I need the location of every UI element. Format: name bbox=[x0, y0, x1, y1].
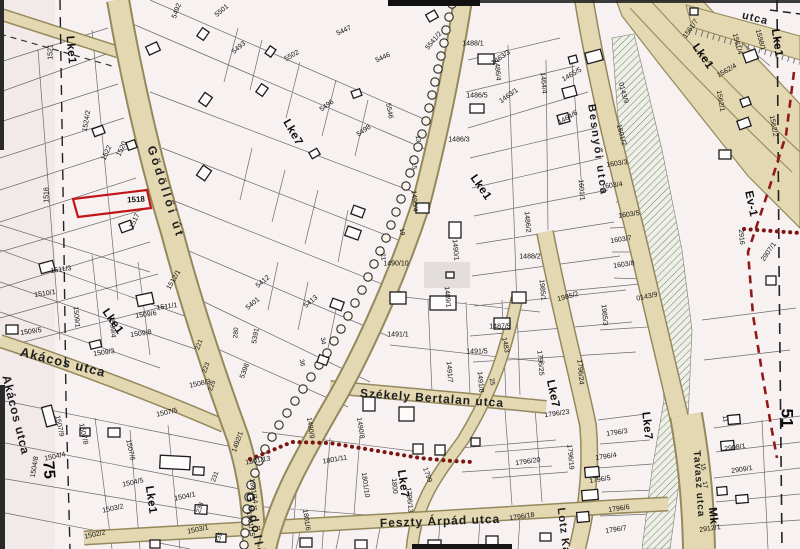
parcel-number-label: 2908/1 bbox=[724, 443, 746, 453]
map-labels-layer: Gödöllői útGödöllői útAkácos utcaAkácos … bbox=[0, 0, 800, 549]
house-number-label: 280 bbox=[233, 327, 240, 338]
parcel-number-label: 0143/9 bbox=[636, 291, 658, 302]
parcel-number-label: 1490/1 bbox=[451, 239, 460, 261]
parcel-number-label: 5401 bbox=[245, 296, 261, 311]
zoning-code-label: Lke1 bbox=[689, 42, 715, 72]
street-name-label: Akácos utca bbox=[0, 374, 31, 456]
parcel-number-label: 1503/1 bbox=[187, 524, 209, 535]
parcel-number-label: 2907/1 bbox=[760, 241, 778, 263]
parcel-number-label: 1796/6 bbox=[608, 504, 630, 514]
parcel-number-label: 5498 bbox=[356, 124, 373, 139]
zoning-code-label: Lke7 bbox=[543, 379, 560, 409]
parcel-number-label: 1503/2 bbox=[102, 503, 124, 514]
parcel-number-label: 1507/9 bbox=[53, 415, 64, 437]
parcel-number-label: 5412 bbox=[255, 274, 271, 289]
parcel-number-label: 1985/2 bbox=[557, 291, 580, 303]
parcel-number-label: 1601/2 bbox=[615, 124, 627, 147]
parcel-number-label: 1562/1 bbox=[715, 90, 726, 112]
parcel-number-label: 5391 bbox=[251, 328, 261, 345]
parcel-number-label: 1483 bbox=[500, 337, 510, 354]
parcel-number-label: 1490/4 bbox=[410, 190, 419, 212]
parcel-number-label: 1796/20 bbox=[515, 457, 541, 467]
parcel-number-label: 1504/8 bbox=[30, 456, 41, 478]
parcel-number-label: 1796/3 bbox=[606, 428, 628, 438]
house-number-label: 233 bbox=[196, 502, 206, 514]
parcel-number-label: 1598/1 bbox=[754, 29, 766, 52]
street-name-label: Lotz Ká bbox=[555, 507, 572, 549]
parcel-number-label: 1504/1 bbox=[174, 491, 196, 502]
parcel-number-label: 1562/2 bbox=[768, 115, 779, 137]
parcel-number-label: 1985/3 bbox=[600, 304, 609, 326]
parcel-number-label: 5493 bbox=[231, 40, 247, 55]
parcel-number-label: 1796/23 bbox=[544, 409, 570, 419]
house-number-label: 34 bbox=[318, 337, 326, 345]
parcel-number-label: 1603/3 bbox=[606, 159, 628, 169]
zoning-code-label: Lke1 bbox=[467, 173, 493, 203]
parcel-number-label: 1796/7 bbox=[605, 525, 627, 535]
parcel-number-label: 5447 bbox=[335, 25, 352, 38]
red-parcel-number-label: 1518 bbox=[127, 196, 145, 205]
zoning-code-label: Lke1 bbox=[768, 28, 783, 58]
parcel-number-label: 1601/1 bbox=[577, 179, 586, 201]
parcel-number-label: 1488/1 bbox=[462, 41, 483, 48]
block-number-label: 51 bbox=[779, 409, 796, 428]
parcel-number-label: 1603/5 bbox=[618, 210, 640, 220]
house-number-label: 17 bbox=[700, 481, 708, 489]
parcel-number-label: 1488/2 bbox=[519, 254, 540, 261]
parcel-number-label: 1561/7 bbox=[682, 18, 700, 40]
parcel-number-label: 1517 bbox=[129, 212, 142, 229]
parcel-number-label: 1522 bbox=[101, 144, 114, 161]
parcel-number-label: 1521 bbox=[48, 44, 55, 60]
parcel-number-label: 1491/5 bbox=[466, 349, 487, 356]
parcel-number-label: 1464/4 bbox=[539, 72, 548, 94]
parcel-number-label: 2916 bbox=[737, 229, 745, 245]
parcel-number-label: 1491/7 bbox=[445, 361, 454, 383]
parcel-number-label: 1796/5 bbox=[589, 475, 611, 485]
parcel-number-label: 1524/2 bbox=[82, 110, 93, 132]
zoning-code-label: Lke7 bbox=[280, 118, 304, 148]
parcel-number-label: 5446 bbox=[374, 52, 391, 65]
house-number-label: 11 bbox=[720, 415, 728, 423]
parcel-number-label: 1801/11 bbox=[322, 454, 348, 465]
house-number-label: 221 bbox=[195, 339, 205, 351]
parcel-number-label: 0143/9 bbox=[617, 82, 629, 105]
parcel-number-label: 5413 bbox=[303, 294, 319, 309]
parcel-number-label: 1507/8 bbox=[77, 423, 88, 445]
parcel-number-label: 1490/9 bbox=[305, 417, 315, 439]
parcel-number-label: 1510/1 bbox=[34, 289, 56, 299]
street-name-label: utca bbox=[741, 10, 769, 27]
parcel-number-label: 1512/1 bbox=[166, 269, 183, 291]
parcel-number-label: 1491/8 bbox=[476, 371, 485, 393]
zoning-code-label: Ev-1 bbox=[742, 190, 759, 218]
parcel-number-label: 1509/6 bbox=[135, 310, 157, 320]
parcel-number-label: 1507/5 bbox=[156, 407, 178, 418]
house-number-label: 15 bbox=[698, 463, 706, 471]
parcel-number-label: 1520 bbox=[116, 140, 129, 157]
parcel-number-label: 1464/6 bbox=[557, 110, 579, 127]
street-name-label: Gödöllői út bbox=[145, 144, 186, 239]
parcel-number-label: 1800 bbox=[390, 478, 398, 494]
house-number-label: 36 bbox=[297, 359, 305, 367]
parcel-number-label: 1985/1 bbox=[538, 279, 547, 301]
house-number-label: 13 bbox=[413, 135, 421, 143]
parcel-number-label: 1562/4 bbox=[716, 63, 738, 80]
parcel-number-label: 2909/1 bbox=[731, 465, 753, 475]
parcel-number-label: 1486/3 bbox=[448, 137, 469, 144]
parcel-number-label: 5501 bbox=[214, 3, 230, 18]
parcel-number-label: 1463/1 bbox=[498, 87, 520, 105]
parcel-number-label: 1489/1 bbox=[443, 286, 452, 308]
house-number-label: 19 bbox=[397, 228, 405, 236]
parcel-number-label: 1504/5 bbox=[122, 477, 144, 488]
parcel-number-label: 1796/25 bbox=[535, 350, 544, 376]
parcel-number-label: 1603/8 bbox=[613, 260, 635, 270]
parcel-number-label: 1796/19 bbox=[565, 444, 574, 470]
parcel-number-label: 1490/8 bbox=[355, 417, 365, 439]
parcel-number-label: 1463/3 bbox=[490, 49, 512, 67]
parcel-number-label: 1511/3 bbox=[50, 265, 72, 275]
parcel-number-label: 1801/10 bbox=[360, 472, 370, 498]
block-number-label: 75 bbox=[39, 460, 56, 479]
house-number-label: 223 bbox=[202, 362, 212, 374]
parcel-number-label: 5541/2 bbox=[424, 31, 443, 52]
parcel-number-label: 5502 bbox=[284, 49, 301, 63]
parcel-number-label: 1796/24 bbox=[575, 359, 584, 385]
parcel-number-label: 1511/1 bbox=[156, 302, 178, 312]
house-number-label: 15 bbox=[409, 162, 417, 170]
parcel-number-label: 1561/4 bbox=[731, 33, 743, 56]
parcel-number-label: 1509/5 bbox=[20, 327, 42, 337]
parcel-number-label: 1801/13 bbox=[245, 455, 271, 466]
zoning-code-label: Lke1 bbox=[142, 485, 157, 515]
parcel-number-label: 1509/3 bbox=[93, 348, 115, 358]
zoning-code-label: Mk bbox=[705, 507, 718, 525]
parcel-number-label: 1603/4 bbox=[601, 181, 623, 191]
parcel-number-label: 1603/7 bbox=[610, 235, 632, 245]
parcel-number-label: 1796/13 bbox=[404, 487, 413, 513]
parcel-number-label: 1509/1 bbox=[72, 306, 81, 328]
house-number-label: 235 bbox=[215, 532, 225, 544]
zoning-code-label: Lke7 bbox=[639, 411, 653, 440]
parcel-number-label: 1491/1 bbox=[387, 332, 408, 339]
parcel-number-label: 1516 bbox=[44, 187, 51, 203]
parcel-number-label: 1492/1 bbox=[231, 431, 245, 454]
parcel-number-label: 1796/4 bbox=[595, 452, 617, 462]
parcel-number-label: 5496 bbox=[319, 99, 336, 114]
parcel-number-label: 1487/5 bbox=[489, 324, 510, 331]
parcel-number-label: 1486/5 bbox=[466, 93, 487, 100]
parcel-number-label: 1801/6 bbox=[301, 509, 311, 531]
parcel-number-label: 1507/6 bbox=[124, 439, 135, 461]
parcel-number-label: 1799 bbox=[421, 466, 433, 483]
parcel-number-label: 5398 bbox=[239, 362, 251, 379]
parcel-number-label: 1796/18 bbox=[509, 512, 535, 522]
parcel-number-label: 5546 bbox=[384, 103, 394, 120]
parcel-number-label: 1502/2 bbox=[84, 529, 106, 540]
parcel-number-label: 1486/2 bbox=[523, 211, 532, 233]
parcel-number-label: 5492 bbox=[171, 2, 183, 19]
house-number-label: 25 bbox=[487, 378, 495, 386]
parcel-number-label: 1490/10 bbox=[383, 261, 408, 268]
house-number-label: 231 bbox=[211, 471, 221, 483]
zoning-code-label: Lke1 bbox=[63, 35, 77, 64]
parcel-number-label: 2912/1 bbox=[699, 524, 721, 534]
street-name-label: Feszty Árpád utca bbox=[380, 513, 501, 529]
parcel-number-label: 1509/8 bbox=[130, 329, 152, 339]
parcel-number-label: 1465/5 bbox=[561, 67, 583, 84]
cadastral-map-sheet: Gödöllői útGödöllői útAkácos utcaAkácos … bbox=[0, 0, 800, 549]
